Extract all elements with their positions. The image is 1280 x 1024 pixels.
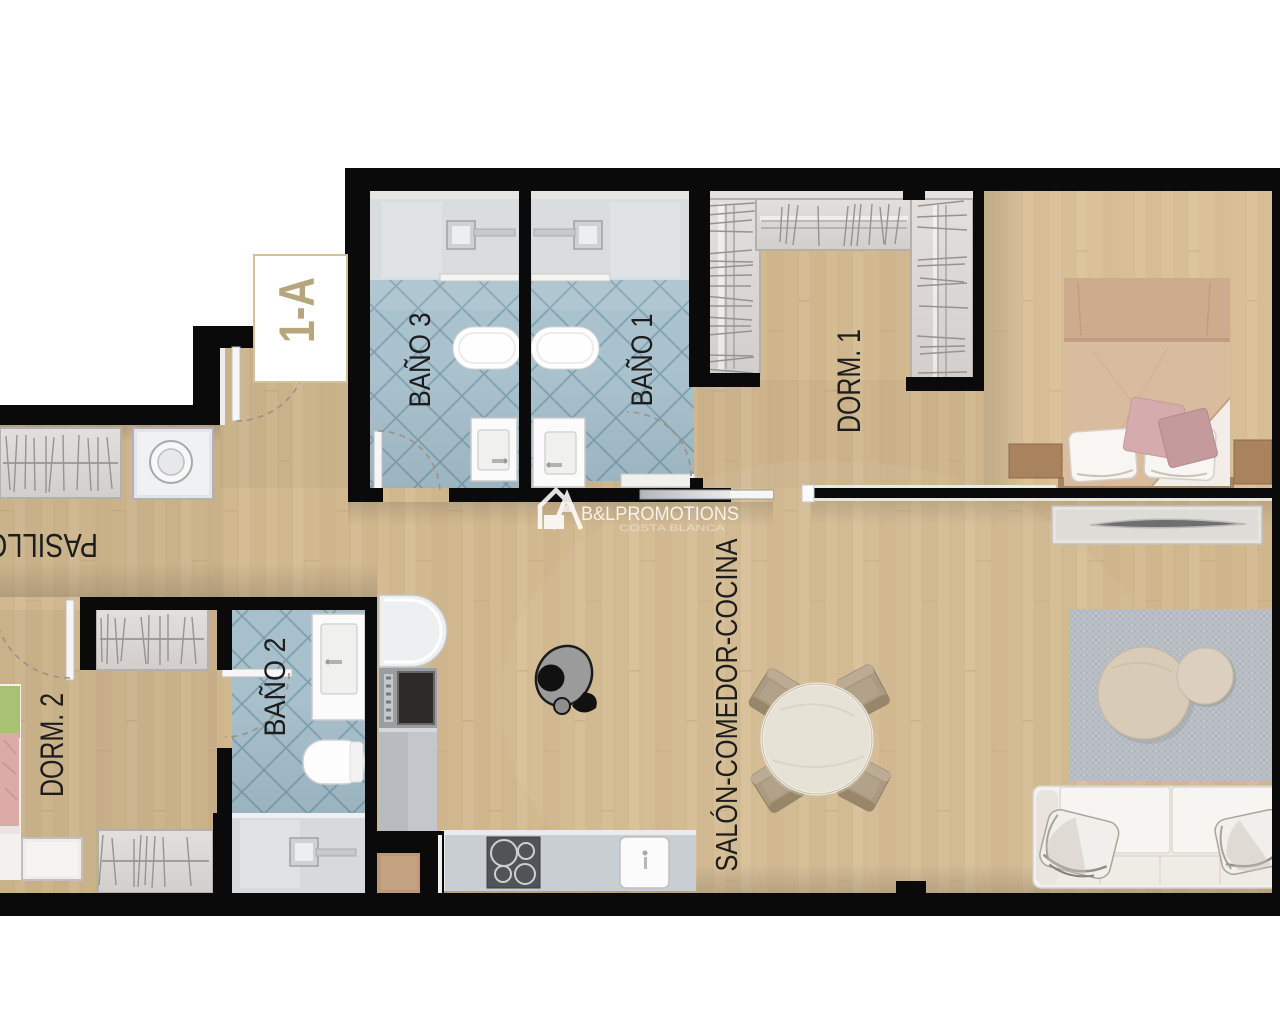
svg-text:BAÑO 1: BAÑO 1 xyxy=(625,314,659,407)
svg-text:BAÑO 3: BAÑO 3 xyxy=(403,313,437,408)
svg-text:COSTA BLANCA: COSTA BLANCA xyxy=(619,523,725,533)
svg-text:DORM. 1: DORM. 1 xyxy=(831,329,867,433)
svg-text:DORM. 2: DORM. 2 xyxy=(34,693,70,797)
svg-text:BAÑO 2: BAÑO 2 xyxy=(258,638,292,737)
svg-text:1-A: 1-A xyxy=(269,277,325,343)
svg-text:B&LPROMOTIONS: B&LPROMOTIONS xyxy=(581,504,739,525)
svg-text:SALÓN-COMEDOR-COCINA: SALÓN-COMEDOR-COCINA xyxy=(709,538,744,871)
svg-text:PASILLO: PASILLO xyxy=(0,527,98,564)
